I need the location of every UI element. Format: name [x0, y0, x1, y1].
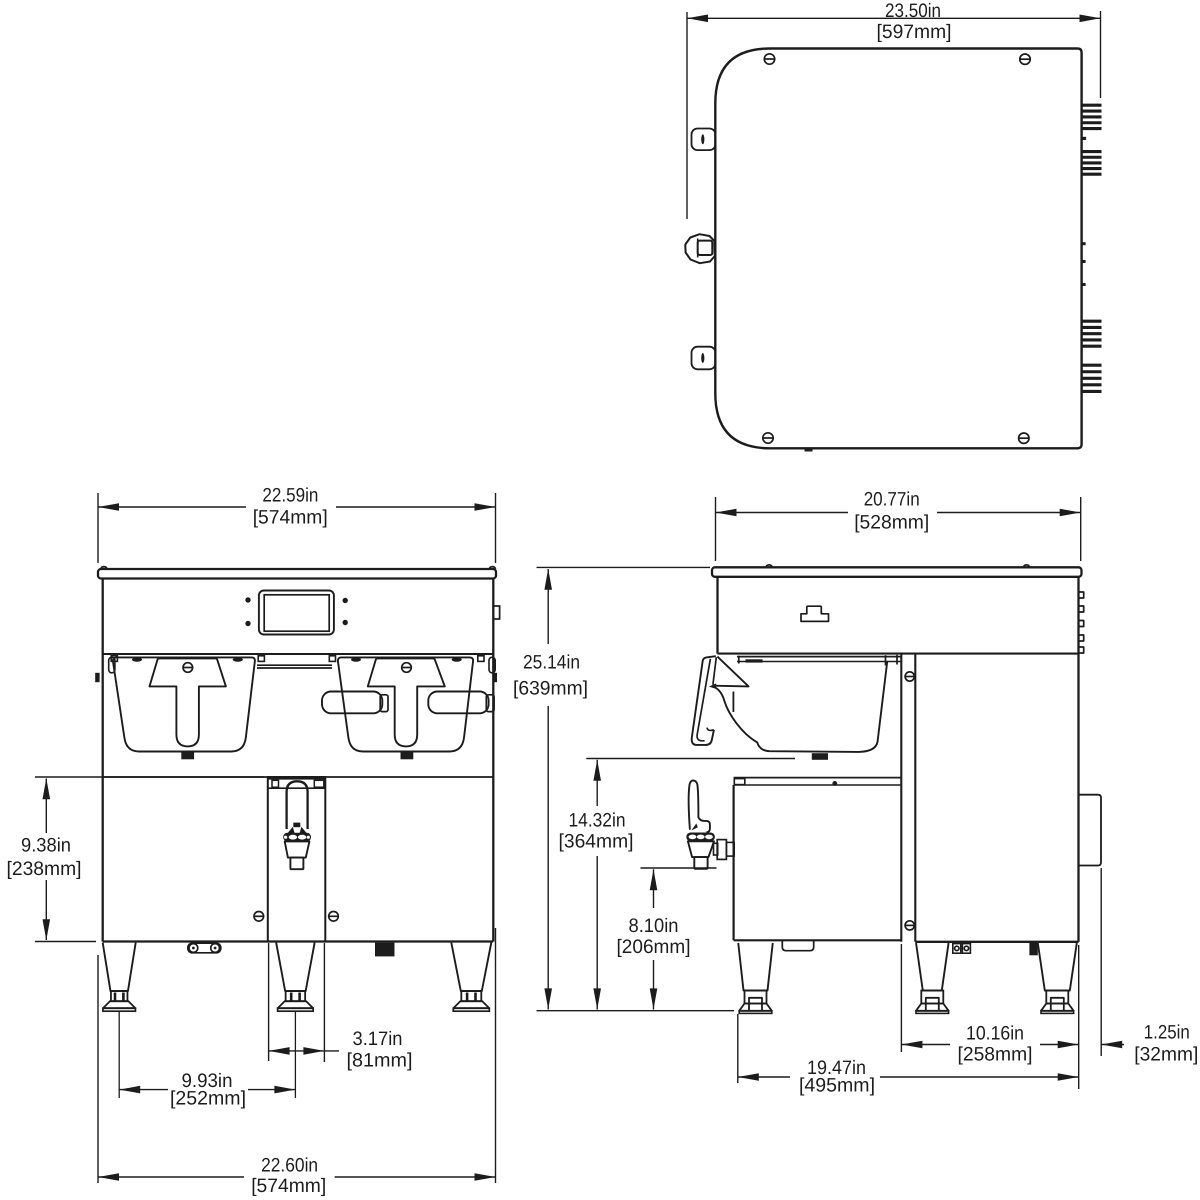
svg-text:14.32in: 14.32in	[569, 810, 626, 832]
svg-text:[258mm]: [258mm]	[958, 1044, 1033, 1066]
svg-text:[81mm]: [81mm]	[347, 1050, 413, 1072]
svg-text:22.59in: 22.59in	[262, 484, 318, 506]
svg-text:[639mm]: [639mm]	[513, 677, 588, 699]
svg-text:[574mm]: [574mm]	[251, 1175, 326, 1197]
svg-text:3.17in: 3.17in	[353, 1028, 403, 1050]
svg-text:8.10in: 8.10in	[629, 915, 679, 937]
svg-text:[206mm]: [206mm]	[617, 936, 691, 958]
svg-text:10.16in: 10.16in	[966, 1023, 1024, 1045]
svg-text:[597mm]: [597mm]	[877, 21, 952, 43]
svg-text:25.14in: 25.14in	[523, 652, 580, 674]
svg-text:[252mm]: [252mm]	[170, 1088, 246, 1110]
svg-text:22.60in: 22.60in	[261, 1154, 318, 1176]
svg-text:[32mm]: [32mm]	[1134, 1043, 1198, 1065]
svg-text:[364mm]: [364mm]	[559, 830, 634, 852]
svg-text:20.77in: 20.77in	[864, 489, 920, 511]
svg-text:[495mm]: [495mm]	[799, 1074, 875, 1096]
svg-text:9.38in: 9.38in	[21, 835, 71, 857]
svg-text:[238mm]: [238mm]	[7, 858, 82, 880]
svg-text:23.50in: 23.50in	[885, 0, 941, 22]
svg-text:[574mm]: [574mm]	[253, 506, 328, 528]
svg-text:[528mm]: [528mm]	[854, 512, 929, 534]
svg-text:1.25in: 1.25in	[1144, 1022, 1190, 1044]
